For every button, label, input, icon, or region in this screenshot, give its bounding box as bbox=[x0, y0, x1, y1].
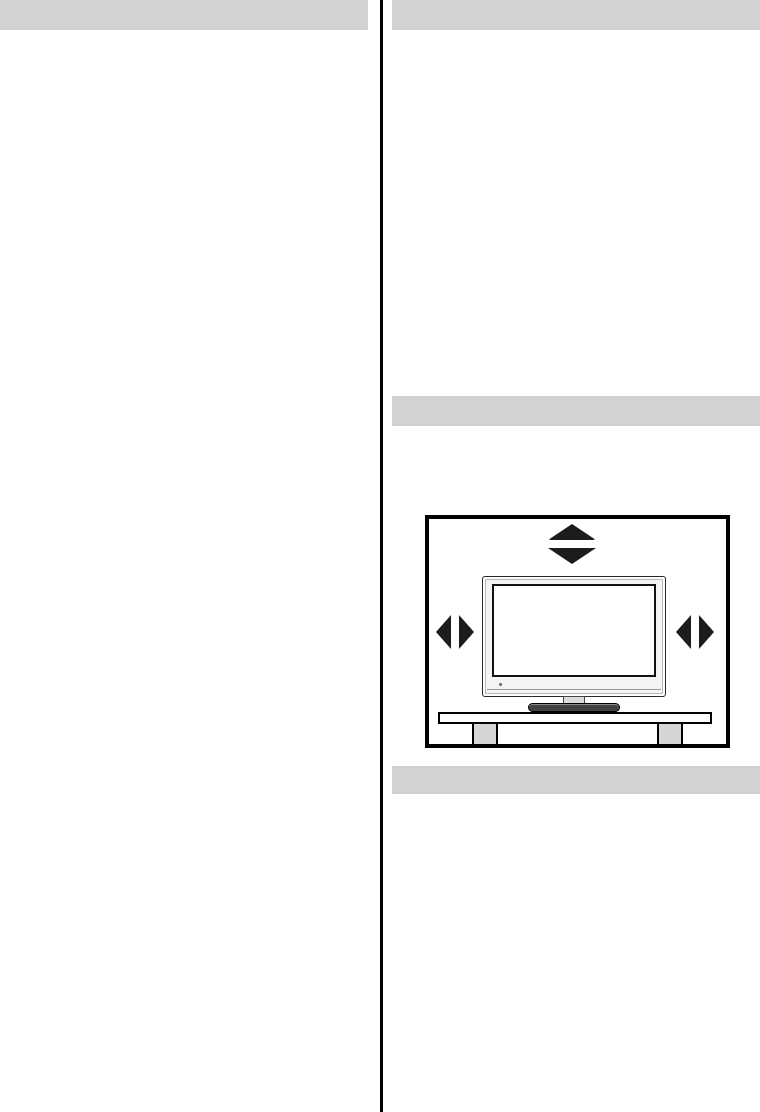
clearance-arrow-left-icon bbox=[436, 615, 451, 649]
table-top bbox=[438, 712, 712, 724]
clearance-arrow-up-icon bbox=[548, 524, 596, 540]
left-column-section-header-bar bbox=[0, 0, 368, 30]
column-divider-rule bbox=[380, 0, 383, 1112]
tv-screen bbox=[492, 584, 656, 677]
manual-page bbox=[0, 0, 760, 1112]
tv-bezel-bottom-strip bbox=[487, 689, 661, 690]
table-leg-right bbox=[657, 724, 683, 744]
clearance-arrow-right-icon bbox=[699, 615, 714, 649]
tv-bezel bbox=[482, 576, 666, 697]
right-column-bottom-section-header-bar bbox=[392, 766, 760, 794]
clearance-arrow-right-icon bbox=[459, 615, 474, 649]
right-column-section-header-bar bbox=[392, 0, 760, 30]
tv-ventilation-clearance-diagram bbox=[425, 515, 730, 748]
tv-power-led bbox=[499, 683, 502, 686]
table-leg-left bbox=[472, 724, 498, 744]
tv-stand-base bbox=[528, 703, 620, 712]
right-column-mid-section-header-bar bbox=[392, 396, 760, 426]
clearance-arrow-down-icon bbox=[548, 548, 596, 564]
clearance-arrow-left-icon bbox=[676, 615, 691, 649]
